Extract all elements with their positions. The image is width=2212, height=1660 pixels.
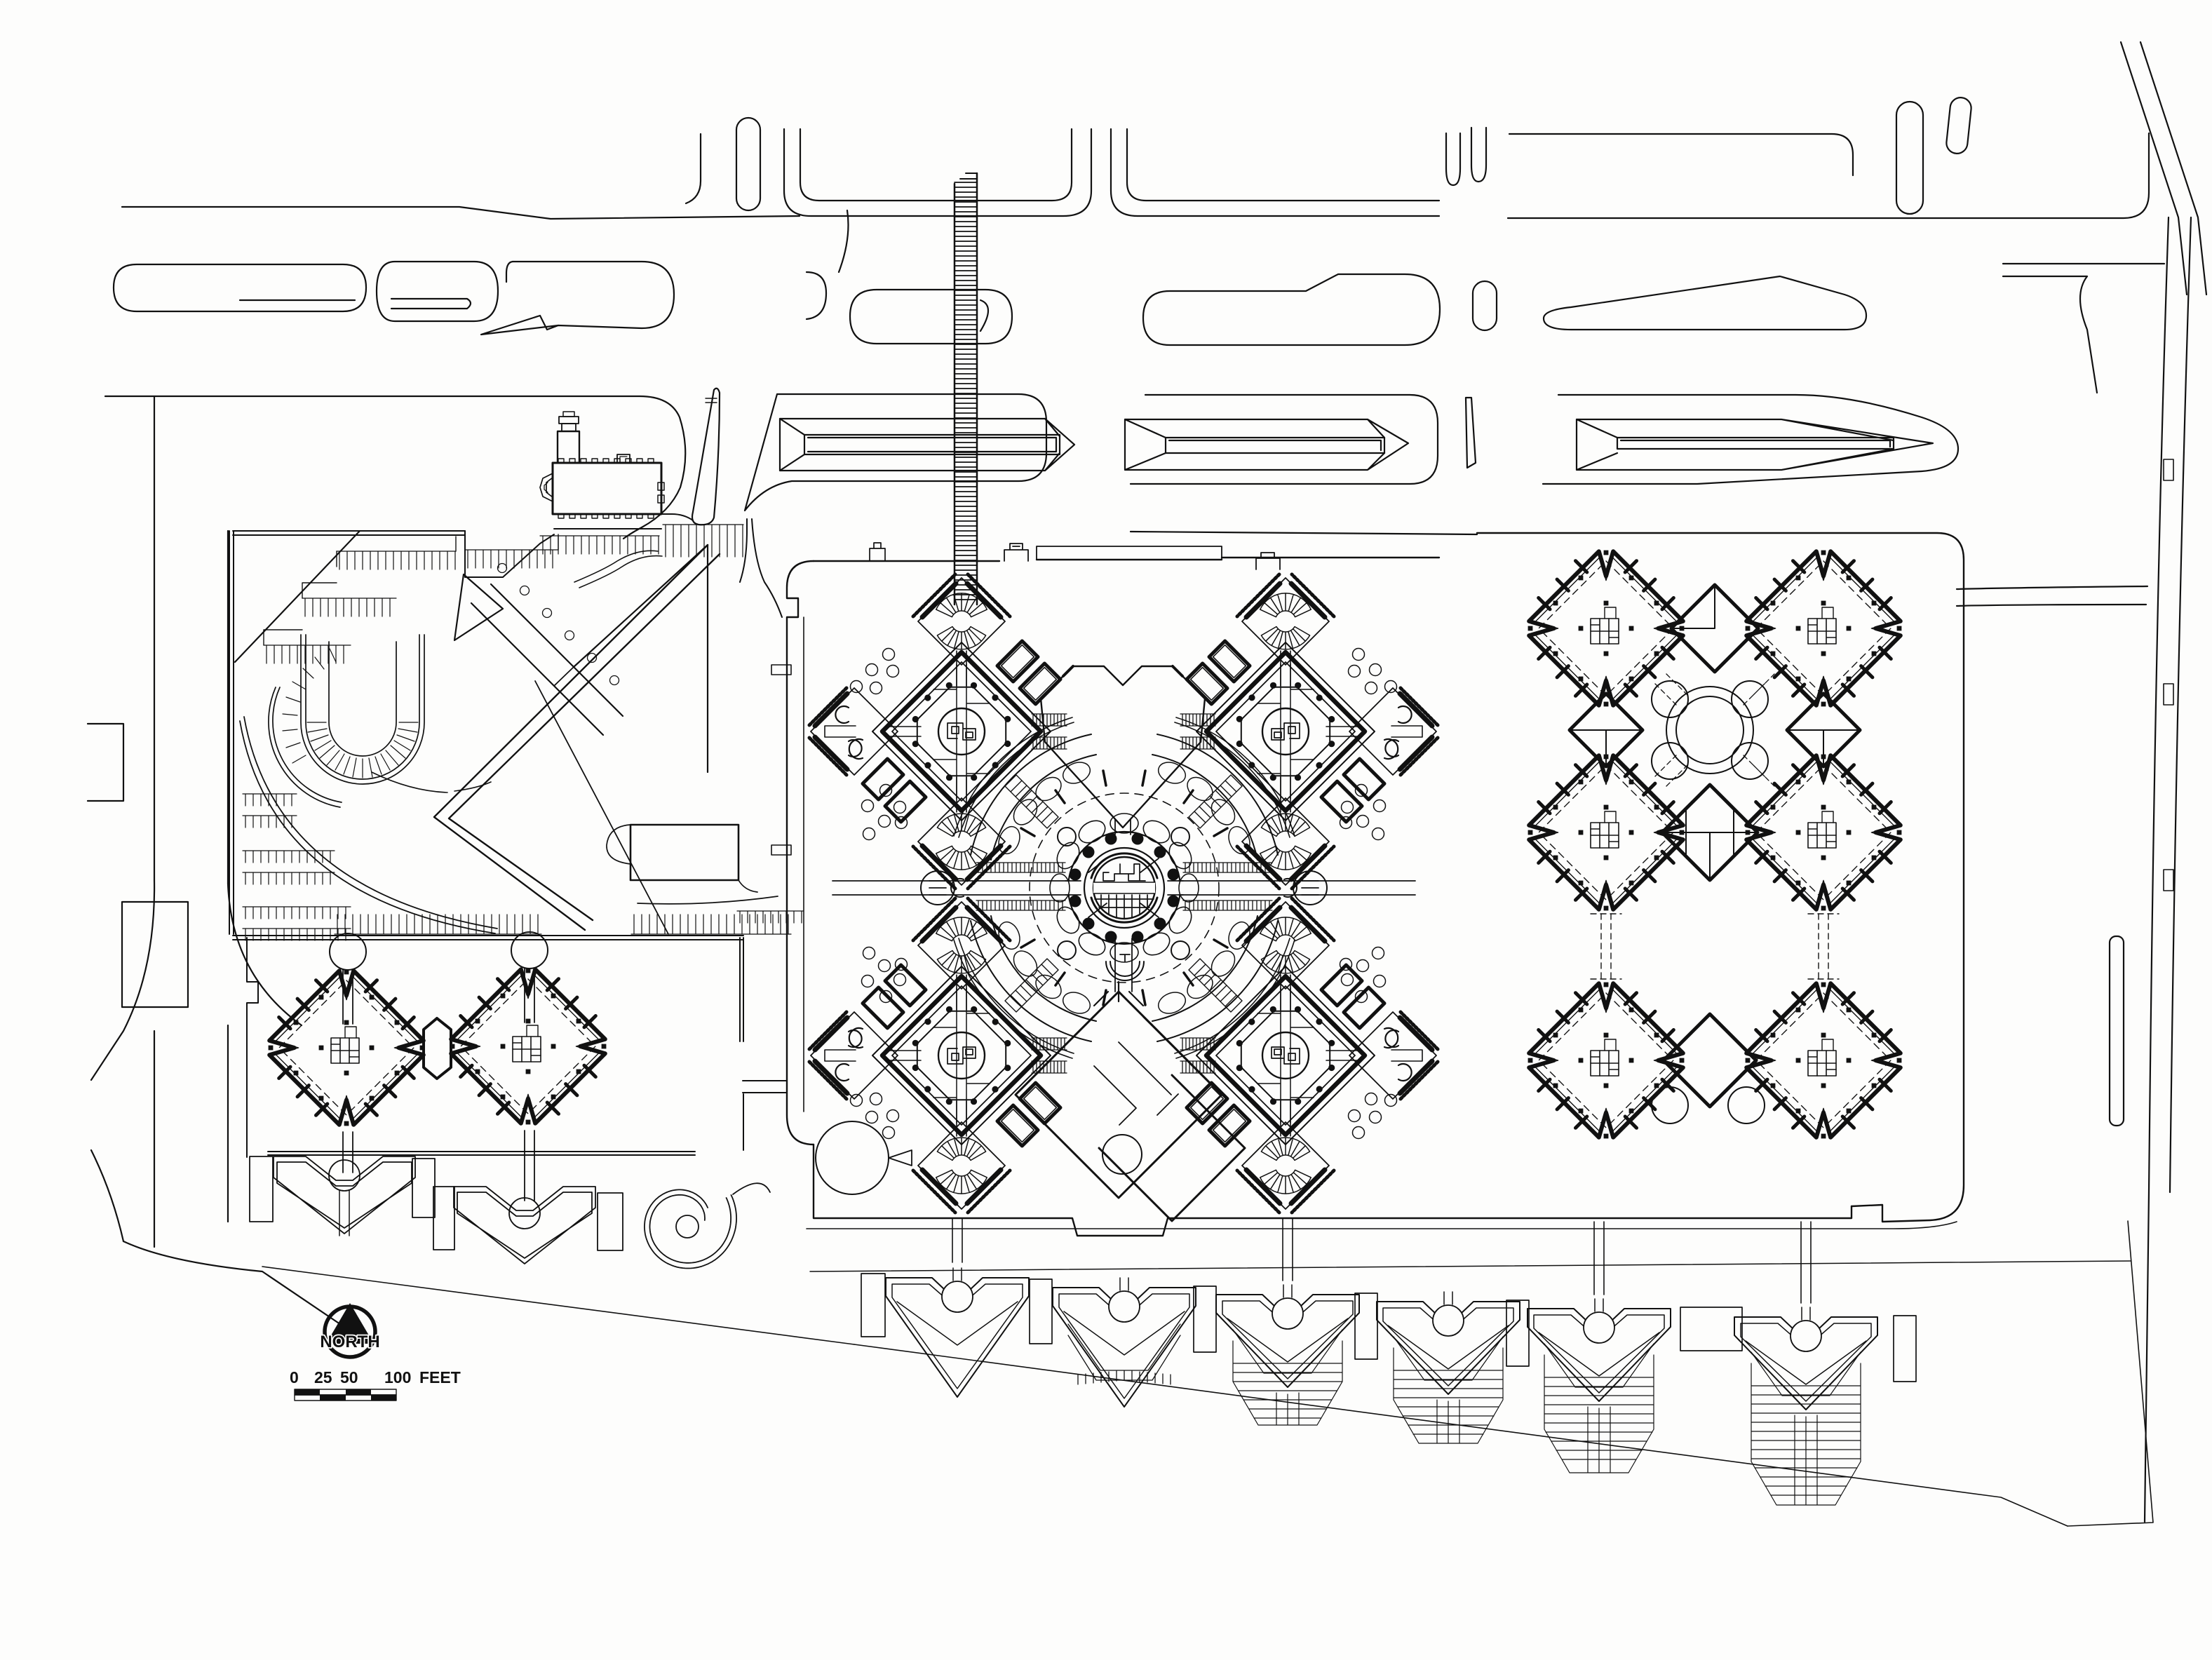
svg-text:50: 50 <box>340 1368 358 1386</box>
svg-text:FEET: FEET <box>419 1368 461 1386</box>
svg-text:25: 25 <box>314 1368 332 1386</box>
svg-text:0: 0 <box>290 1368 299 1386</box>
svg-text:NORTH: NORTH <box>320 1332 379 1351</box>
svg-text:100: 100 <box>384 1368 411 1386</box>
